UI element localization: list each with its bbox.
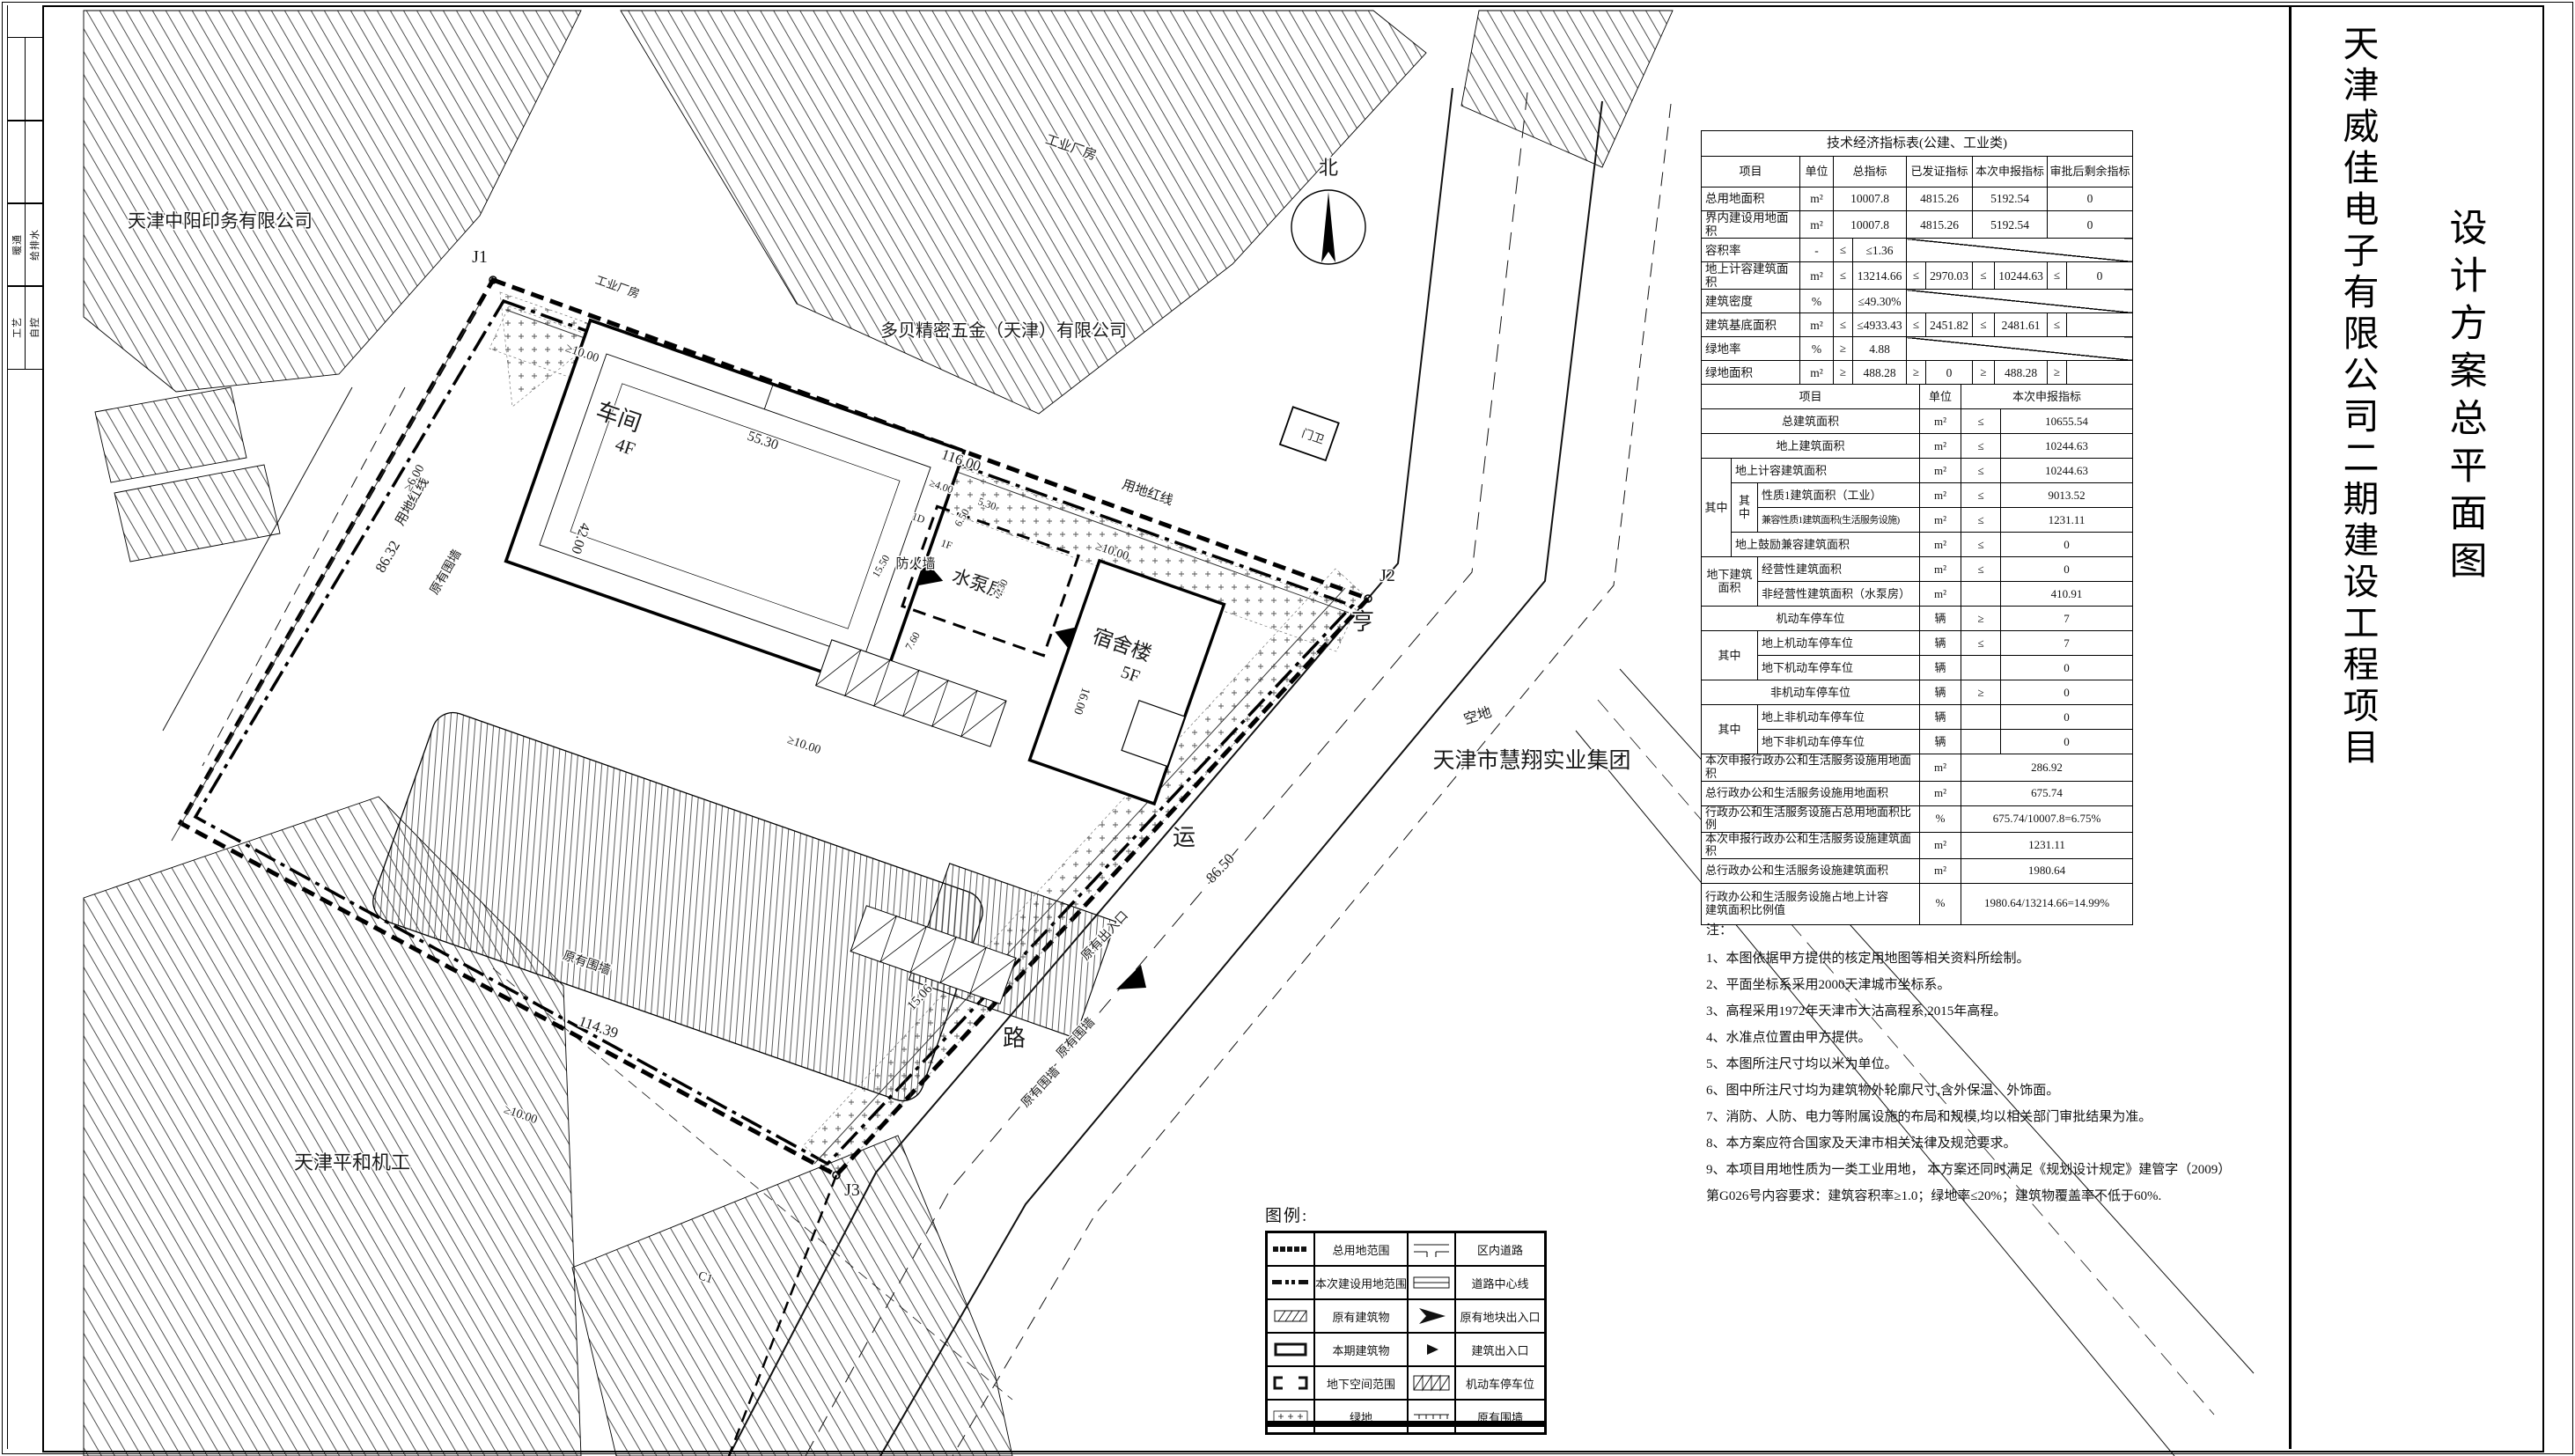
table-cell: m²	[1920, 483, 1961, 508]
table-cell: 辆	[1920, 631, 1961, 656]
table-cell: 已发证指标	[1907, 157, 1973, 188]
table-cell: ≤	[1961, 409, 2001, 434]
note-item: 9、本项目用地性质为一类工业用地， 本方案还同时满足《规划设计规定》建管字（20…	[1706, 1157, 2252, 1210]
table-cell: 行政办公和生活服务设施占总用地面积比例	[1702, 805, 1920, 832]
table-cell: 488.28	[1995, 361, 2048, 385]
wall-legend-symbol	[1408, 1400, 1455, 1433]
table-cell: 辆	[1920, 705, 1961, 730]
titleblock-cell: 自控	[26, 286, 43, 369]
table-cell: 机动车停车位	[1702, 607, 1920, 631]
table-cell: m²	[1920, 409, 1961, 434]
table-cell: 1231.11	[1961, 832, 2133, 858]
table-row: 地下建筑面积经营性建筑面积m²≤0	[1702, 557, 2133, 582]
table-cell: 0	[2048, 188, 2133, 211]
table-cell: ≤	[1961, 434, 2001, 459]
table-row: 建筑密度%≤49.30%	[1702, 290, 2133, 313]
note-item: 8、本方案应符合国家及天津市相关法律及规范要求。	[1706, 1130, 2252, 1157]
table-cell: ≥	[1961, 680, 2001, 705]
table-cell: m²	[1920, 781, 1961, 805]
table-row: 本次申报行政办公和生活服务设施建筑面积m²1231.11	[1702, 832, 2133, 858]
table-cell: 0	[2001, 730, 2133, 754]
table-cell: ≥	[1907, 361, 1926, 385]
table-cell: 总用地面积	[1702, 188, 1800, 211]
table-row: 总行政办公和生活服务设施用地面积m²675.74	[1702, 781, 2133, 805]
table-section-b: 项目单位本次申报指标总建筑面积m²≤10655.54地上建筑面积m²≤10244…	[1701, 384, 2133, 924]
table-cell	[2067, 313, 2133, 337]
table-cell: 13214.66	[1853, 262, 1907, 290]
table-row: 其中地上非机动车停车位辆0	[1702, 705, 2133, 730]
table-cell: 地下非机动车停车位	[1758, 730, 1920, 754]
tech-econ-table: 技术经济指标表(公建、工业类)项目单位总指标已发证指标本次申报指标审批后剩余指标…	[1701, 130, 2134, 925]
table-header-row: 项目单位本次申报指标	[1702, 385, 2133, 409]
table-row: 非经营性建筑面积（水泵房）m²410.91	[1702, 582, 2133, 607]
table-cell: 410.91	[2001, 582, 2133, 607]
table-cell: 4.88	[1853, 337, 1907, 361]
titleblock-cell	[8, 121, 26, 203]
titleblock-row: 工艺自控	[8, 285, 43, 370]
table-cell: 0	[2001, 705, 2133, 730]
table-cell: 0	[2067, 262, 2133, 290]
legend-label: 区内道路	[1455, 1232, 1545, 1266]
project-title: 天津威佳电子有限公司二期建设工程项目	[2331, 25, 2384, 769]
table-cell: 10244.63	[2001, 459, 2133, 483]
table-cell: 地上鼓励兼容建筑面积	[1732, 533, 1920, 557]
legend-title: 图例:	[1265, 1202, 1547, 1226]
table-cell: 辆	[1920, 680, 1961, 705]
titleblock-cell: 给排水	[26, 203, 43, 286]
table-cell: 其中	[1732, 483, 1758, 533]
table-cell: m²	[1920, 858, 1961, 883]
table-cell: 10007.8	[1834, 188, 1907, 211]
table-cell: ≤	[1907, 313, 1926, 337]
notes-heading: 注：	[1706, 917, 2252, 944]
legend-label: 本次建设用地范围	[1314, 1266, 1408, 1299]
table-row: 地下机动车停车位辆0	[1702, 656, 2133, 680]
table-cell: ≤	[1961, 631, 2001, 656]
legend-label: 总用地范围	[1314, 1232, 1408, 1266]
table-cell: 项目	[1702, 385, 1920, 409]
titleblock-cell	[26, 121, 43, 203]
titleblock-strip: 暖通给排水工艺自控	[7, 5, 43, 1449]
note-item: 5、本图所注尺寸均以米为单位。	[1706, 1051, 2252, 1077]
table-section-a: 技术经济指标表(公建、工业类)项目单位总指标已发证指标本次申报指标审批后剩余指标…	[1701, 130, 2133, 385]
title-panel-divider	[2289, 5, 2292, 1449]
table-cell: ≤	[1973, 262, 1995, 290]
table-cell: 地上计容建筑面积	[1732, 459, 1920, 483]
table-title-row: 技术经济指标表(公建、工业类)	[1702, 131, 2133, 157]
table-row: 绿地面积m²≥488.28≥0≥488.28≥	[1702, 361, 2133, 385]
dashdot-bold-legend-symbol	[1267, 1266, 1314, 1299]
table-cell: 0	[2001, 533, 2133, 557]
table-cell: m²	[1920, 459, 1961, 483]
table-cell: 9013.52	[2001, 483, 2133, 508]
table-cell: 非经营性建筑面积（水泵房）	[1758, 582, 1920, 607]
table-row: 地上建筑面积m²≤10244.63	[1702, 434, 2133, 459]
note-item: 3、高程采用1972年天津市大沽高程系,2015年高程。	[1706, 998, 2252, 1025]
table-cell: m²	[1800, 361, 1834, 385]
bold-rect-legend-symbol	[1267, 1333, 1314, 1366]
table-cell	[2067, 361, 2133, 385]
table-cell	[1907, 337, 2133, 361]
table-cell: 2970.03	[1926, 262, 1973, 290]
table-cell: ≥	[1961, 607, 2001, 631]
table-row: 机动车停车位辆≥7	[1702, 607, 2133, 631]
table-cell: 容积率	[1702, 239, 1800, 262]
table-cell: m²	[1920, 754, 1961, 781]
table-cell	[1834, 290, 1853, 313]
note-item: 4、水准点位置由甲方提供。	[1706, 1025, 2252, 1051]
table-cell: m²	[1800, 188, 1834, 211]
titleblock-cell	[26, 38, 43, 121]
legend-label: 原有建筑物	[1314, 1299, 1408, 1333]
legend-label: 绿地	[1314, 1400, 1408, 1433]
parking-legend-symbol	[1408, 1366, 1455, 1400]
note-item: 7、消防、人防、电力等附属设施的布局和规模,均以相关部门审批结果为准。	[1706, 1104, 2252, 1130]
hatch-rect-legend-symbol	[1267, 1299, 1314, 1333]
table-row: 总行政办公和生活服务设施建筑面积m²1980.64	[1702, 858, 2133, 883]
table-cell: 审批后剩余指标	[2048, 157, 2133, 188]
table-cell: 7	[2001, 607, 2133, 631]
table-cell: 286.92	[1961, 754, 2133, 781]
centerline-legend-symbol	[1408, 1266, 1455, 1299]
table-cell: 7	[2001, 631, 2133, 656]
table-row: 总建筑面积m²≤10655.54	[1702, 409, 2133, 434]
table-cell: m²	[1920, 832, 1961, 858]
table-cell: 0	[2001, 656, 2133, 680]
table-cell	[1961, 582, 2001, 607]
table-cell: %	[1800, 290, 1834, 313]
table-cell: ≤4933.43	[1853, 313, 1907, 337]
table-cell	[1961, 656, 2001, 680]
note-item: 6、图中所注尺寸均为建筑物外轮廓尺寸,含外保温、外饰面。	[1706, 1077, 2252, 1104]
green-rect-legend-symbol	[1267, 1400, 1314, 1433]
table-title: 技术经济指标表(公建、工业类)	[1702, 131, 2133, 157]
table-cell: 总建筑面积	[1702, 409, 1920, 434]
table-cell: ≤	[1834, 313, 1853, 337]
table-cell: 地下机动车停车位	[1758, 656, 1920, 680]
table-cell	[1961, 705, 2001, 730]
table-cell: 单位	[1800, 157, 1834, 188]
table-cell: ≤	[1961, 533, 2001, 557]
table-cell: ≤	[1907, 262, 1926, 290]
legend-label: 地下空间范围	[1314, 1366, 1408, 1400]
titleblock-row	[8, 37, 43, 121]
table-cell: ≤	[2048, 313, 2067, 337]
table-cell: ≤	[1961, 483, 2001, 508]
table-row: 其中地上计容建筑面积m²≤10244.63	[1702, 459, 2133, 483]
legend-label: 道路中心线	[1455, 1266, 1545, 1299]
table-cell: ≥	[1834, 337, 1853, 361]
table-cell: 4815.26	[1907, 188, 1973, 211]
legend-label: 原有地块出入口	[1455, 1299, 1545, 1333]
table-cell: 地上建筑面积	[1702, 434, 1920, 459]
table-cell: ≤	[1961, 459, 2001, 483]
table-cell: ≤49.30%	[1853, 290, 1907, 313]
table-cell: ≤	[1834, 262, 1853, 290]
table-cell: 5192.54	[1973, 211, 2048, 239]
table-cell: 1231.11	[2001, 508, 2133, 533]
table-cell: 0	[2001, 680, 2133, 705]
drawing-sheet: 天津中阳印务有限公司多贝精密五金（天津）有限公司工业厂房工业厂房天津平和机工天津…	[0, 0, 2575, 1456]
table-cell: 辆	[1920, 656, 1961, 680]
table-cell: m²	[1920, 557, 1961, 582]
table-cell: m²	[1800, 313, 1834, 337]
table-cell: 2481.61	[1995, 313, 2048, 337]
table-cell: 10655.54	[2001, 409, 2133, 434]
note-item: 2、平面坐标系采用2000天津城市坐标系。	[1706, 972, 2252, 998]
table-cell: m²	[1800, 262, 1834, 290]
table-cell	[1907, 239, 2133, 262]
legend-label: 机动车停车位	[1455, 1366, 1545, 1400]
table-cell: 建筑基底面积	[1702, 313, 1800, 337]
table-cell: %	[1920, 805, 1961, 832]
notes-block: 注： 1、本图依据甲方提供的核定用地图等相关资料所绘制。2、平面坐标系采用200…	[1706, 917, 2252, 1210]
table-cell: 单位	[1920, 385, 1961, 409]
table-cell: -	[1800, 239, 1834, 262]
table-cell: m²	[1920, 533, 1961, 557]
legend-label: 建筑出入口	[1455, 1333, 1545, 1366]
table-cell: ≤1.36	[1853, 239, 1907, 262]
table-row: 行政办公和生活服务设施占总用地面积比例%675.74/10007.8=6.75%	[1702, 805, 2133, 832]
table-cell: m²	[1920, 434, 1961, 459]
table-row: 建筑基底面积m²≤≤4933.43≤2451.82≤2481.61≤	[1702, 313, 2133, 337]
table-cell: 本次申报行政办公和生活服务设施用地面积	[1702, 754, 1920, 781]
table-cell: 488.28	[1853, 361, 1907, 385]
table-row: 地下非机动车停车位辆0	[1702, 730, 2133, 754]
table-cell: 4815.26	[1907, 211, 1973, 239]
titleblock-row	[8, 120, 43, 204]
table-cell: 5192.54	[1973, 188, 2048, 211]
table-cell: m²	[1920, 582, 1961, 607]
underground-legend-symbol	[1267, 1366, 1314, 1400]
table-cell: 辆	[1920, 607, 1961, 631]
table-cell: 地下建筑面积	[1702, 557, 1758, 607]
table-cell: 本次申报指标	[1961, 385, 2133, 409]
table-cell: 建筑密度	[1702, 290, 1800, 313]
table-cell: m²	[1800, 211, 1834, 239]
table-cell: ≤	[1834, 239, 1853, 262]
table-cell: 1980.64	[1961, 858, 2133, 883]
table-cell: 总指标	[1834, 157, 1907, 188]
table-cell: 其中	[1702, 705, 1758, 754]
table-cell: 绿地率	[1702, 337, 1800, 361]
table-row: 容积率-≤≤1.36	[1702, 239, 2133, 262]
table-cell: 其中	[1702, 459, 1732, 557]
table-cell: ≥	[1973, 361, 1995, 385]
table-cell: ≥	[2048, 361, 2067, 385]
table-row: 界内建设用地面积m²10007.84815.265192.540	[1702, 211, 2133, 239]
titleblock-cell: 暖通	[8, 203, 26, 286]
table-cell: 10007.8	[1834, 211, 1907, 239]
drawing-title: 设计方案总平面图	[2437, 208, 2491, 588]
table-cell: 地上机动车停车位	[1758, 631, 1920, 656]
table-cell: ≤	[1961, 557, 2001, 582]
table-cell: 兼容性质1建筑面积(生活服务设施)	[1758, 508, 1920, 533]
table-cell: 地上计容建筑面积	[1702, 262, 1800, 290]
table-cell: 0	[2001, 557, 2133, 582]
table-cell: ≤	[1961, 508, 2001, 533]
table-row: 绿地率%≥4.88	[1702, 337, 2133, 361]
table-cell: 本次申报行政办公和生活服务设施建筑面积	[1702, 832, 1920, 858]
table-cell: 非机动车停车位	[1702, 680, 1920, 705]
table-cell: 总行政办公和生活服务设施用地面积	[1702, 781, 1920, 805]
table-cell: 项目	[1702, 157, 1800, 188]
scale-bar	[1265, 1421, 1545, 1427]
table-cell: 绿地面积	[1702, 361, 1800, 385]
table-cell	[1961, 730, 2001, 754]
table-row: 总用地面积m²10007.84815.265192.540	[1702, 188, 2133, 211]
table-cell: 675.74	[1961, 781, 2133, 805]
legend: 图例: 总用地范围区内道路本次建设用地范围道路中心线原有建筑物原有地块出入口本期…	[1265, 1202, 1547, 1435]
table-cell: 辆	[1920, 730, 1961, 754]
table-row: 其中性质1建筑面积（工业）m²≤9013.52	[1702, 483, 2133, 508]
arrow-small-legend-symbol	[1408, 1333, 1455, 1366]
table-cell: 性质1建筑面积（工业）	[1758, 483, 1920, 508]
legend-label: 原有围墙	[1455, 1400, 1545, 1433]
table-cell: 0	[2048, 211, 2133, 239]
table-cell: 界内建设用地面积	[1702, 211, 1800, 239]
table-row: 其中地上机动车停车位辆≤7	[1702, 631, 2133, 656]
table-cell: ≥	[1834, 361, 1853, 385]
table-cell: %	[1800, 337, 1834, 361]
table-cell: 总行政办公和生活服务设施建筑面积	[1702, 858, 1920, 883]
road-legend-symbol	[1408, 1232, 1455, 1266]
dash-bold-legend-symbol	[1267, 1232, 1314, 1266]
table-cell: ≤	[1973, 313, 1995, 337]
table-cell: 675.74/10007.8=6.75%	[1961, 805, 2133, 832]
table-cell: 地上非机动车停车位	[1758, 705, 1920, 730]
table-cell: m²	[1920, 508, 1961, 533]
table-cell: 本次申报指标	[1973, 157, 2048, 188]
table-cell: 10244.63	[1995, 262, 2048, 290]
titleblock-row: 暖通给排水	[8, 202, 43, 287]
table-row: 地上鼓励兼容建筑面积m²≤0	[1702, 533, 2133, 557]
titleblock-cell: 工艺	[8, 286, 26, 369]
arrow-big-legend-symbol	[1408, 1299, 1455, 1333]
table-row: 兼容性质1建筑面积(生活服务设施)m²≤1231.11	[1702, 508, 2133, 533]
table-cell	[1907, 290, 2133, 313]
table-cell: 10244.63	[2001, 434, 2133, 459]
table-cell: 2451.82	[1926, 313, 1973, 337]
table-header-row: 项目单位总指标已发证指标本次申报指标审批后剩余指标	[1702, 157, 2133, 188]
table-cell: 其中	[1702, 631, 1758, 680]
table-row: 本次申报行政办公和生活服务设施用地面积m²286.92	[1702, 754, 2133, 781]
table-cell: 经营性建筑面积	[1758, 557, 1920, 582]
note-item: 1、本图依据甲方提供的核定用地图等相关资料所绘制。	[1706, 945, 2252, 972]
legend-label: 本期建筑物	[1314, 1333, 1408, 1366]
table-cell: ≤	[2048, 262, 2067, 290]
table-cell: 0	[1926, 361, 1973, 385]
table-row: 地上计容建筑面积m²≤13214.66≤2970.03≤10244.63≤0	[1702, 262, 2133, 290]
titleblock-cell	[8, 38, 26, 121]
table-row: 非机动车停车位辆≥0	[1702, 680, 2133, 705]
